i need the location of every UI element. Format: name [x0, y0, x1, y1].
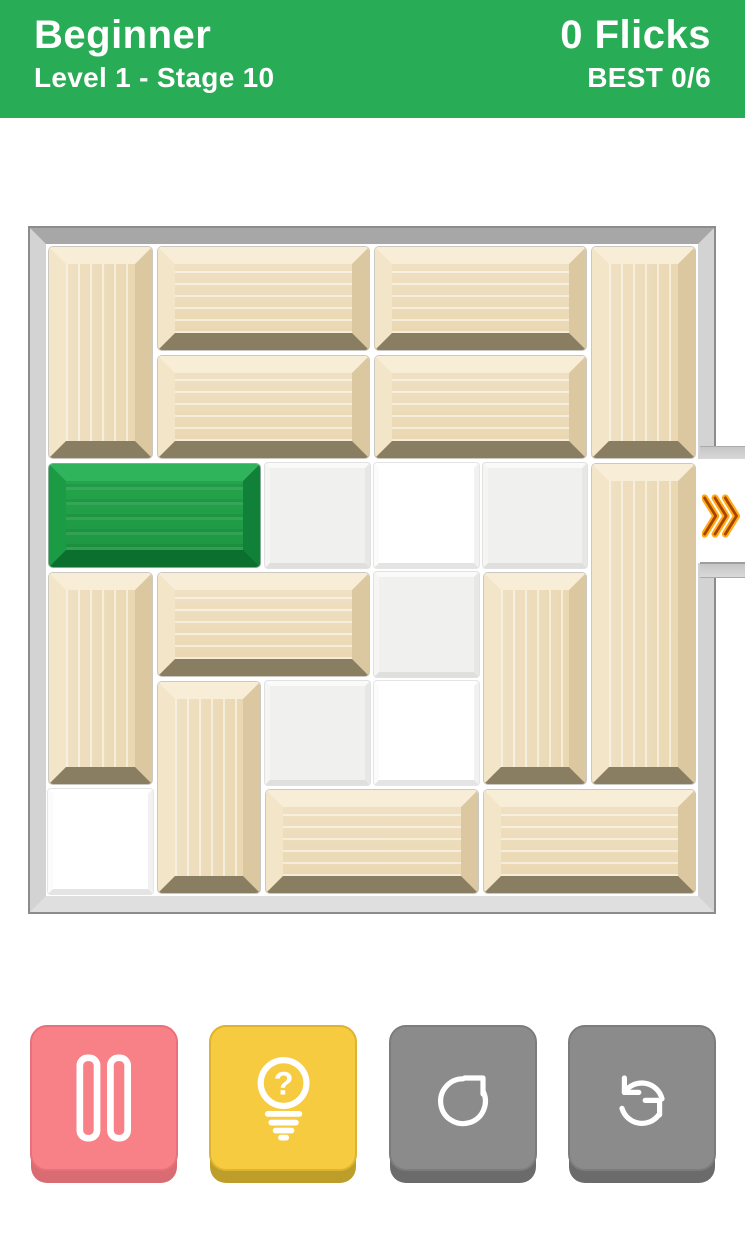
level-stage-label: Level 1 - Stage 10	[34, 61, 274, 95]
pause-icon	[76, 1054, 131, 1142]
restart-button[interactable]	[389, 1025, 537, 1171]
wood-block[interactable]	[158, 682, 261, 893]
wood-block[interactable]	[49, 573, 152, 784]
wood-block[interactable]	[158, 247, 369, 350]
flicks-counter: 0 Flicks	[560, 12, 711, 58]
wood-block[interactable]	[484, 790, 695, 893]
header-right: 0 Flicks BEST 0/6	[560, 12, 711, 95]
header: Beginner Level 1 - Stage 10 0 Flicks BES…	[0, 0, 745, 118]
svg-text:?: ?	[273, 1065, 293, 1101]
hint-button[interactable]: ?	[209, 1025, 357, 1171]
best-score-label: BEST 0/6	[560, 61, 711, 95]
wood-block[interactable]	[266, 790, 477, 893]
shuffle-icon	[606, 1062, 678, 1134]
restart-icon	[427, 1062, 499, 1134]
difficulty-title: Beginner	[34, 12, 274, 58]
hero-block[interactable]	[49, 464, 260, 567]
empty-cell	[48, 789, 153, 894]
game-screen: Beginner Level 1 - Stage 10 0 Flicks BES…	[0, 0, 745, 1234]
empty-cell	[265, 463, 370, 568]
exit-wall-bottom	[700, 562, 745, 578]
wood-block[interactable]	[158, 356, 369, 459]
header-left: Beginner Level 1 - Stage 10	[34, 12, 274, 95]
hint-lightbulb-icon: ?	[244, 1054, 323, 1142]
wood-block[interactable]	[49, 247, 152, 458]
pause-button[interactable]	[30, 1025, 178, 1171]
shuffle-button[interactable]	[568, 1025, 716, 1171]
empty-cell	[265, 681, 370, 786]
empty-cell	[374, 681, 479, 786]
exit-arrows-icon	[702, 491, 740, 541]
empty-cell	[374, 463, 479, 568]
empty-cell	[374, 572, 479, 677]
wood-block[interactable]	[484, 573, 587, 784]
wood-block[interactable]	[375, 247, 586, 350]
wood-block[interactable]	[592, 247, 695, 458]
board-frame	[30, 228, 714, 912]
wood-block[interactable]	[592, 464, 695, 784]
controls-bar: ?	[30, 1025, 716, 1171]
wood-block[interactable]	[158, 573, 369, 676]
board-grid	[46, 244, 698, 896]
wood-block[interactable]	[375, 356, 586, 459]
empty-cell	[483, 463, 588, 568]
